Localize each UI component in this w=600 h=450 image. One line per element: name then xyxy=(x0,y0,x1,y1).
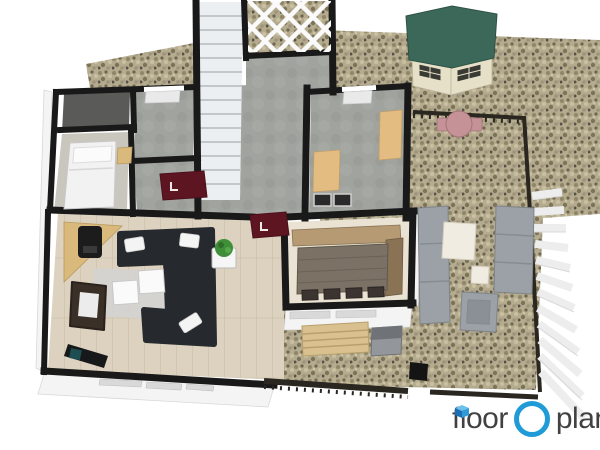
appliance xyxy=(334,194,351,206)
wood-stove xyxy=(78,226,102,258)
staircase xyxy=(196,2,243,200)
bathroom-window-sill xyxy=(145,91,180,104)
gate-post xyxy=(409,362,428,381)
logo-cube-glyph xyxy=(452,401,472,421)
dining-furniture xyxy=(292,225,403,300)
hall-door-mat xyxy=(160,171,207,200)
garden-bench-area xyxy=(302,322,402,356)
appliance xyxy=(314,194,331,206)
south-fence-east xyxy=(430,392,538,397)
recliner-throw xyxy=(78,292,99,318)
logo-word-planner: planner xyxy=(556,402,600,436)
floorplan-render: floor planner xyxy=(0,0,600,450)
bed-pillow xyxy=(73,146,112,163)
dining-face-window xyxy=(336,310,376,318)
nightstand xyxy=(117,147,132,164)
grill-cabinet-top xyxy=(371,326,402,340)
garden-shed xyxy=(406,6,497,95)
office-window-sill xyxy=(343,91,372,105)
kitchen-counter-left xyxy=(313,150,340,192)
potted-plant xyxy=(215,239,233,257)
living-door-mat xyxy=(250,212,289,238)
kitchen-counter-right xyxy=(379,110,402,160)
wood-stove-door xyxy=(83,246,97,253)
outdoor-sofa-right xyxy=(494,206,534,294)
bistro-table xyxy=(446,111,472,137)
outdoor-coffee-table xyxy=(442,222,476,260)
shed-roof xyxy=(406,6,497,68)
floorplanner-logo-icon xyxy=(514,401,550,437)
floorplanner-logo: floor planner xyxy=(452,401,600,437)
outdoor-side-table xyxy=(471,266,489,284)
floorplan-scene xyxy=(0,0,600,450)
dining-face-window xyxy=(290,311,330,319)
